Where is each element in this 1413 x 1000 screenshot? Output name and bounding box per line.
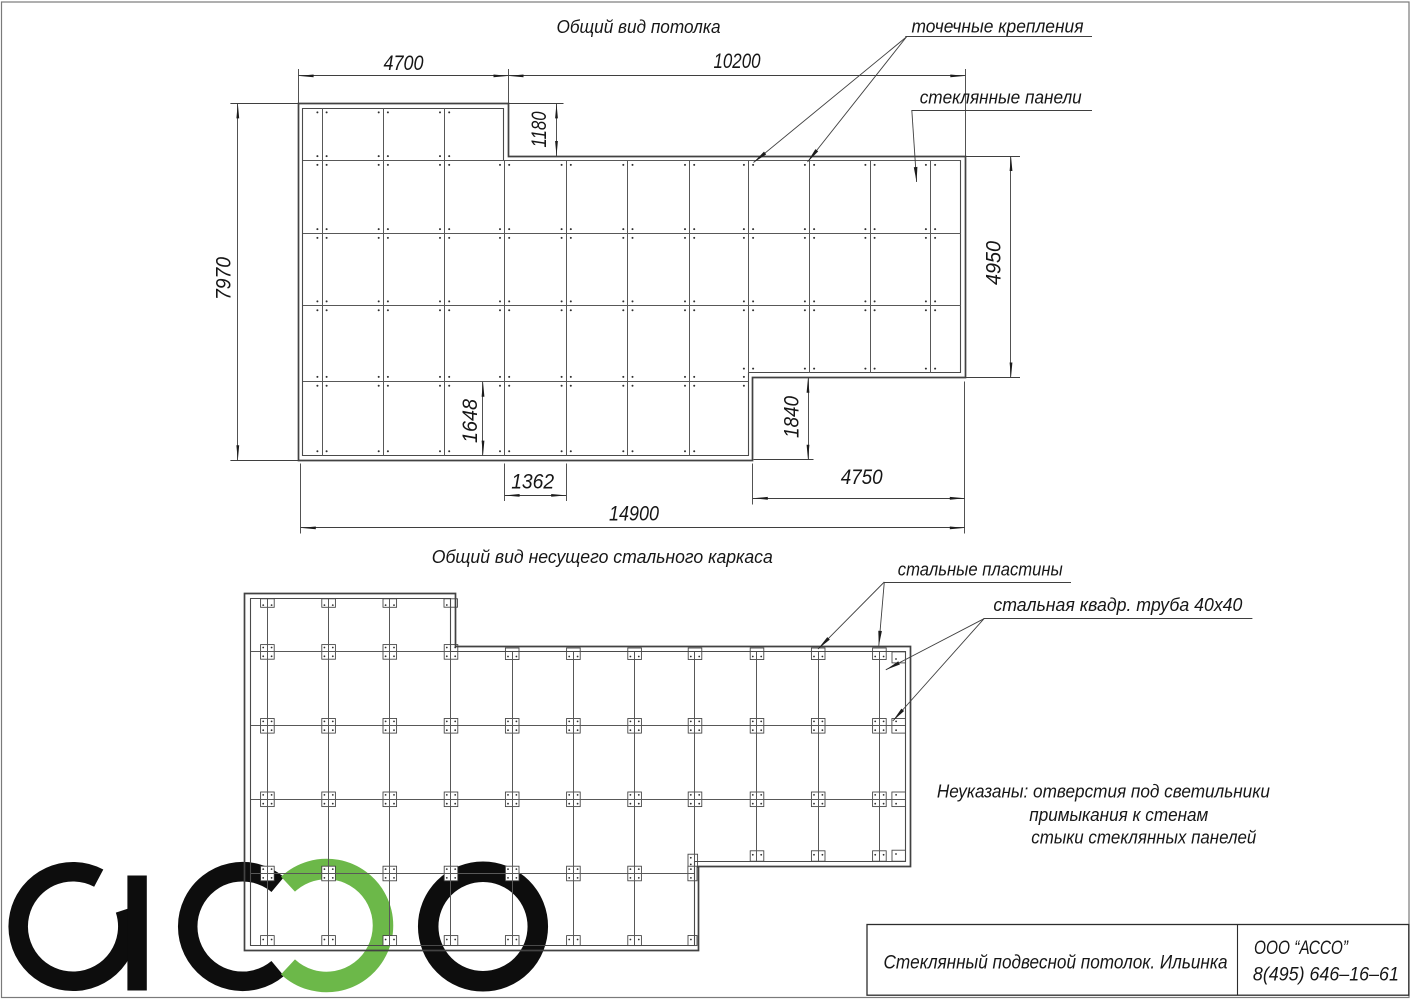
svg-text:1840: 1840	[780, 396, 804, 438]
svg-text:1362: 1362	[511, 470, 554, 494]
svg-text:примыкания к стенам: примыкания к стенам	[1029, 805, 1208, 825]
svg-text:Стеклянный подвесной потолок.: Стеклянный подвесной потолок. Ильинка	[884, 953, 1228, 974]
svg-text:Общий вид потолка: Общий вид потолка	[557, 17, 721, 37]
svg-text:стыки стеклянных панелей: стыки стеклянных панелей	[1031, 828, 1256, 848]
svg-text:1180: 1180	[527, 111, 551, 147]
svg-text:стальная квадр. труба 40х40: стальная квадр. труба 40х40	[993, 595, 1242, 615]
svg-text:4750: 4750	[841, 465, 883, 489]
svg-text:7970: 7970	[212, 257, 236, 300]
svg-text:стальные пластины: стальные пластины	[898, 560, 1063, 580]
svg-text:1648: 1648	[458, 399, 482, 443]
svg-text:10200: 10200	[714, 49, 761, 73]
svg-text:4700: 4700	[384, 51, 424, 75]
svg-text:14900: 14900	[609, 502, 659, 526]
svg-text:4950: 4950	[982, 241, 1006, 285]
svg-text:точечные крепления: точечные крепления	[912, 17, 1084, 37]
svg-text:Неуказаны: отверстия под свети: Неуказаны: отверстия под светильники	[937, 782, 1270, 802]
svg-text:ООО “АССО”: ООО “АССО”	[1254, 938, 1349, 959]
svg-text:8(495) 646–16–61: 8(495) 646–16–61	[1253, 965, 1399, 986]
svg-text:Общий вид несущего стального к: Общий вид несущего стального каркаса	[432, 547, 773, 567]
svg-text:стеклянные панели: стеклянные панели	[920, 88, 1082, 108]
